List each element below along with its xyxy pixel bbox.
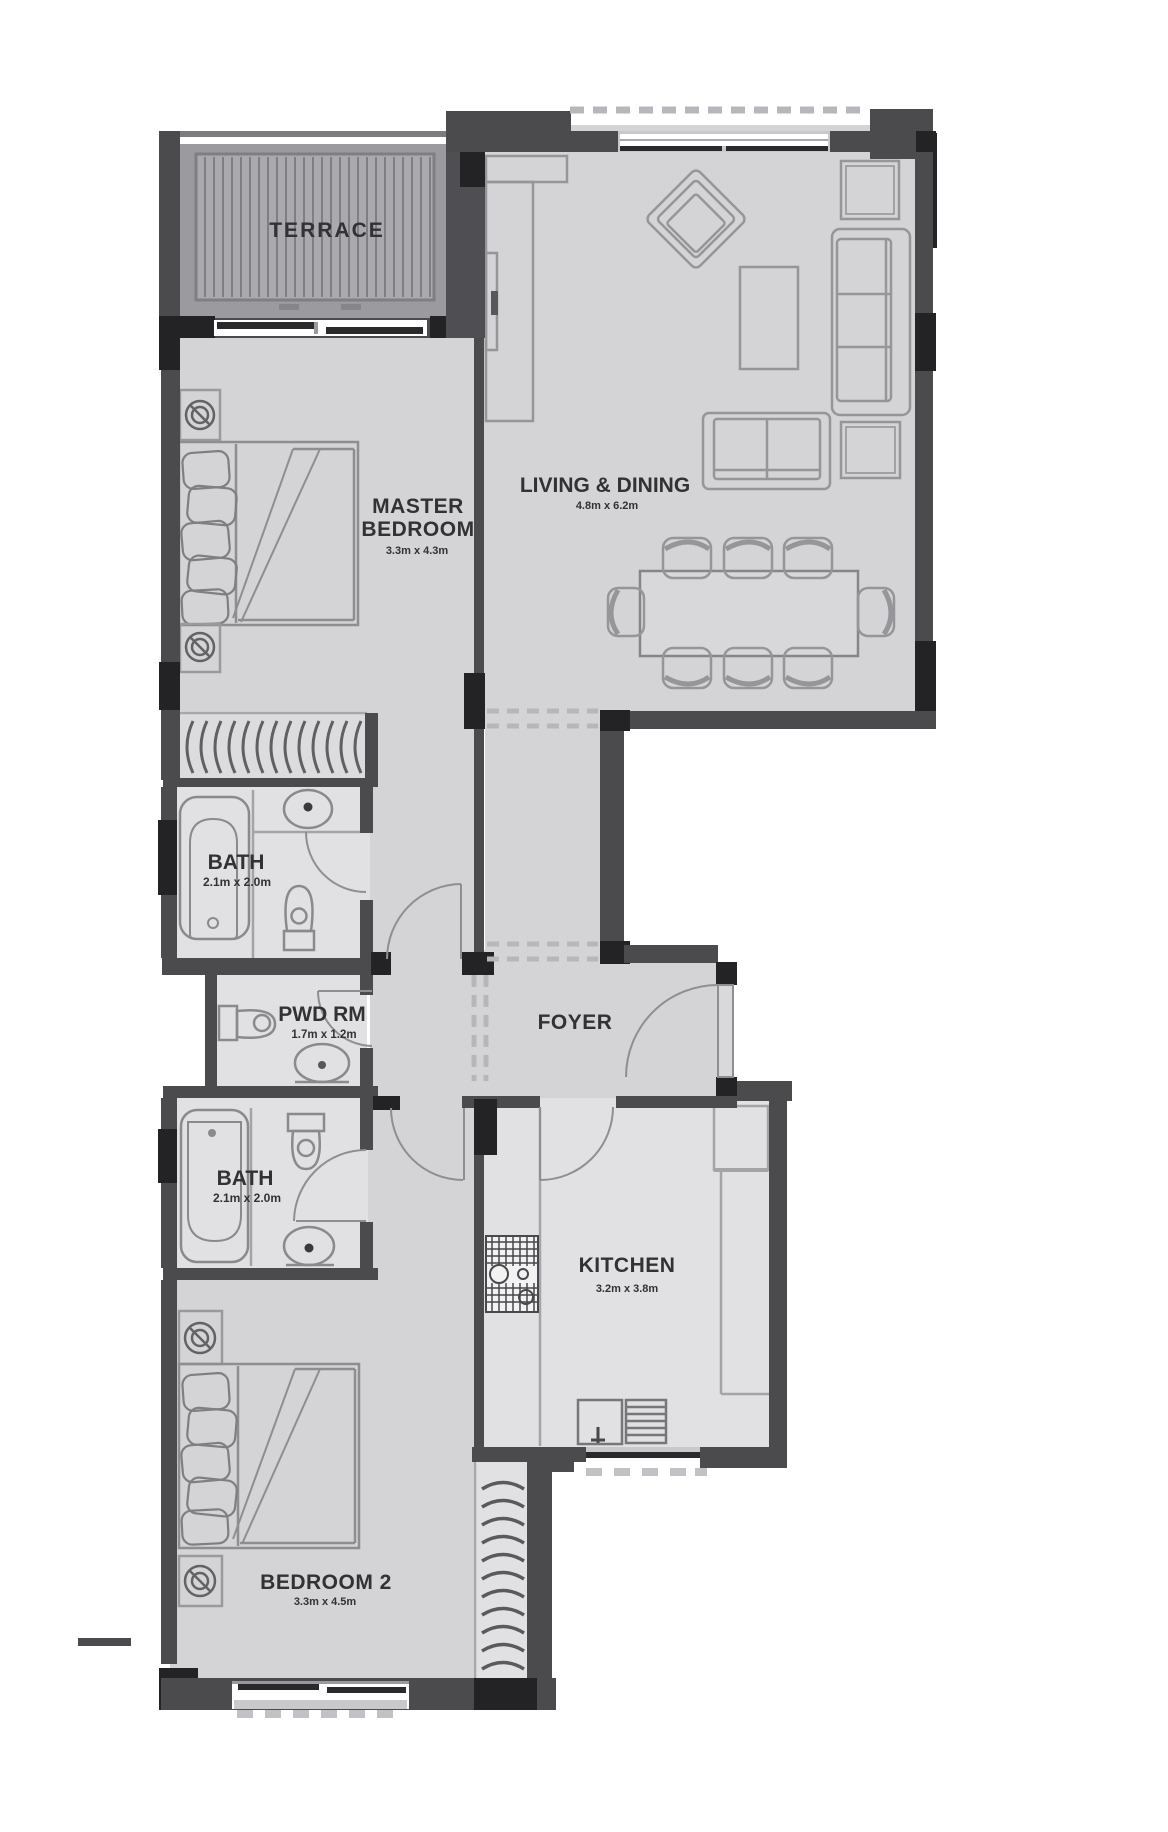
svg-text:2.1m x 2.0m: 2.1m x 2.0m (203, 875, 271, 889)
svg-text:MASTER: MASTER (372, 495, 464, 518)
svg-text:PWD RM: PWD RM (278, 1003, 366, 1026)
svg-text:3.3m x 4.5m: 3.3m x 4.5m (294, 1596, 357, 1608)
svg-text:3.3m x 4.3m: 3.3m x 4.3m (386, 545, 449, 557)
svg-text:LIVING & DINING: LIVING & DINING (520, 474, 690, 497)
svg-text:2.1m x 2.0m: 2.1m x 2.0m (213, 1191, 281, 1205)
svg-text:BATH: BATH (217, 1167, 274, 1190)
svg-text:BATH: BATH (208, 851, 265, 874)
svg-text:BEDROOM 2: BEDROOM 2 (260, 1571, 392, 1594)
svg-text:BEDROOM: BEDROOM (361, 518, 474, 541)
svg-text:TERRACE: TERRACE (269, 219, 385, 242)
svg-text:1.7m x 1.2m: 1.7m x 1.2m (291, 1029, 356, 1041)
svg-text:FOYER: FOYER (538, 1011, 613, 1034)
svg-text:KITCHEN: KITCHEN (579, 1254, 676, 1277)
svg-text:3.2m x 3.8m: 3.2m x 3.8m (596, 1283, 659, 1295)
svg-text:4.8m x 6.2m: 4.8m x 6.2m (576, 500, 639, 512)
